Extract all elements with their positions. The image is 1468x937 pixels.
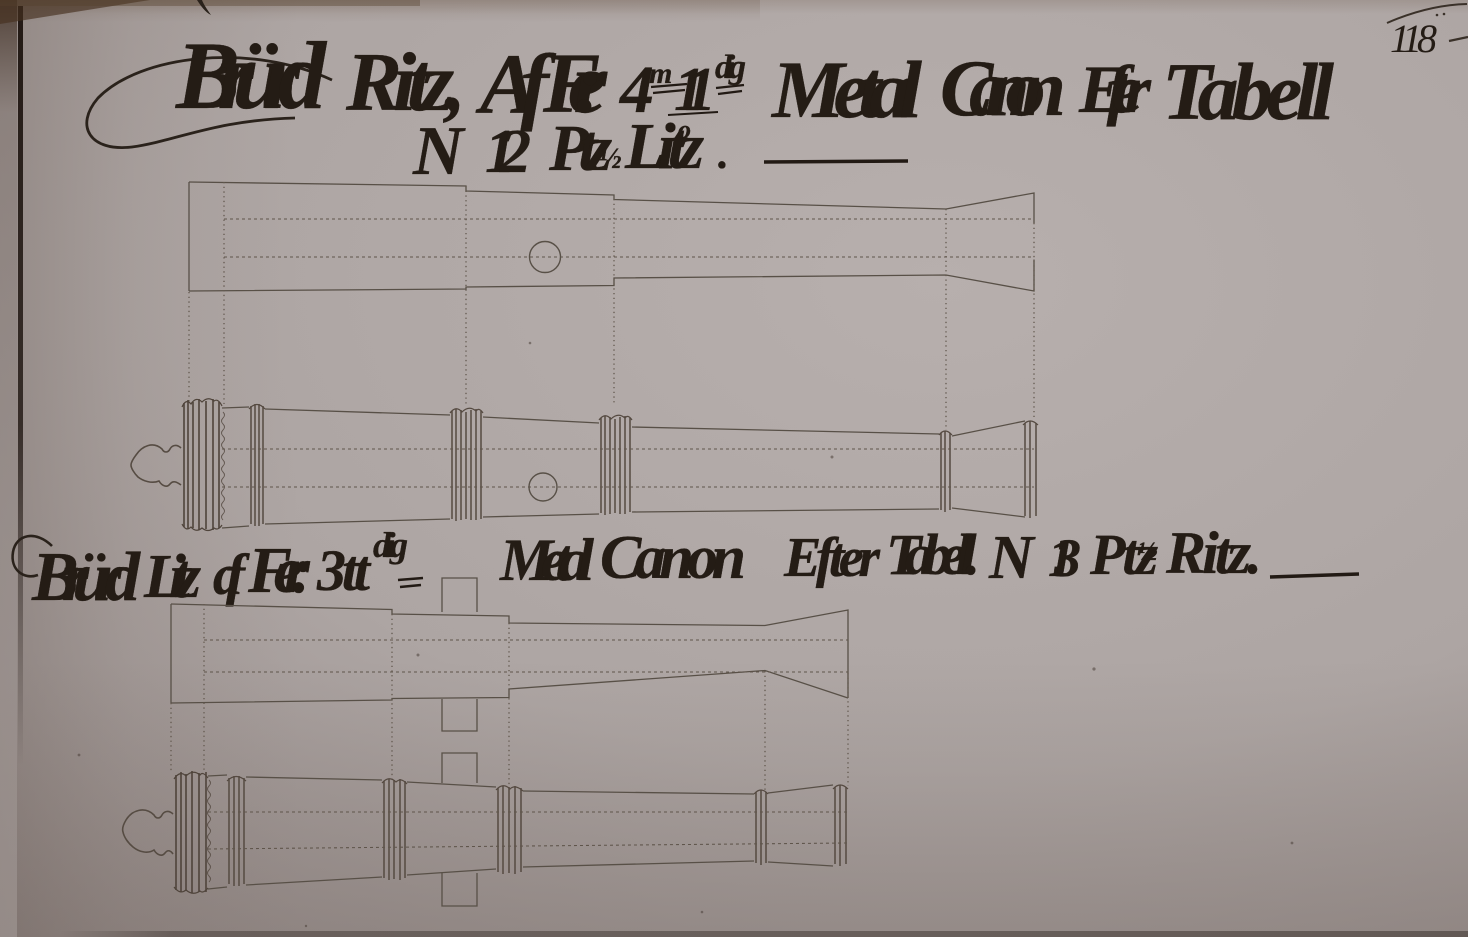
svg-text:dig: dig bbox=[715, 49, 746, 86]
svg-text:Efter: Efter bbox=[1078, 51, 1152, 127]
svg-text:Tabell: Tabell bbox=[1162, 46, 1334, 137]
svg-text:½: ½ bbox=[599, 142, 622, 175]
svg-text:Metal: Metal bbox=[770, 44, 922, 135]
svg-text:N: N bbox=[988, 524, 1036, 592]
svg-text:Efter: Efter bbox=[783, 527, 881, 589]
svg-text:12: 12 bbox=[485, 118, 531, 186]
svg-text:3tt: 3tt bbox=[316, 538, 372, 603]
svg-text:Brürd: Brürd bbox=[175, 22, 328, 129]
svg-text:Litz: Litz bbox=[143, 543, 201, 611]
svg-text:Fer:: Fer: bbox=[247, 534, 313, 607]
svg-text:.: . bbox=[718, 129, 729, 178]
svg-text:o: o bbox=[678, 115, 691, 144]
svg-text:Metal: Metal bbox=[499, 527, 594, 593]
svg-text:Litz: Litz bbox=[624, 110, 704, 183]
svg-text:dig: dig bbox=[373, 525, 408, 565]
svg-text:½: ½ bbox=[1138, 537, 1158, 566]
svg-text:N: N bbox=[412, 113, 466, 190]
svg-text:Brürd: Brürd bbox=[31, 539, 141, 616]
svg-text:Tabell.: Tabell. bbox=[886, 522, 980, 587]
svg-text:Ritz.: Ritz. bbox=[1165, 520, 1262, 586]
svg-text:Canon: Canon bbox=[600, 524, 746, 592]
svg-text:13: 13 bbox=[1048, 528, 1081, 588]
svg-text:118: 118 bbox=[1390, 16, 1437, 61]
svg-text:Canon: Canon bbox=[940, 45, 1066, 133]
